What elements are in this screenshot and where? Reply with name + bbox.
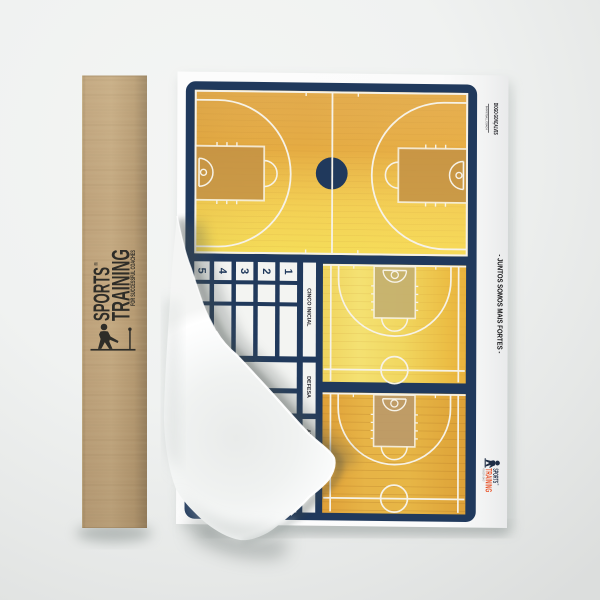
svg-text:DEFESA: DEFESA bbox=[305, 376, 311, 398]
svg-text:®: ® bbox=[496, 483, 500, 485]
svg-text:FOR SUCCESSFUL COACHES: FOR SUCCESSFUL COACHES bbox=[131, 250, 137, 306]
svg-text:CINCO INICIAL: CINCO INICIAL bbox=[305, 288, 311, 327]
svg-text:®: ® bbox=[93, 262, 100, 266]
svg-text:DIOGO GONÇALVES: DIOGO GONÇALVES bbox=[492, 103, 498, 135]
svg-text:FOR SUCCESSFUL COACHES: FOR SUCCESSFUL COACHES bbox=[482, 468, 485, 481]
svg-text:- JUNTOS SOMOS MAIS FORTES -: - JUNTOS SOMOS MAIS FORTES - bbox=[495, 254, 504, 354]
svg-text:4: 4 bbox=[216, 268, 228, 275]
svg-text:3: 3 bbox=[238, 268, 250, 274]
svg-text:2: 2 bbox=[260, 268, 272, 274]
svg-text:1: 1 bbox=[282, 268, 294, 274]
svg-text:BASKETBALL COACH: BASKETBALL COACH bbox=[485, 106, 489, 130]
